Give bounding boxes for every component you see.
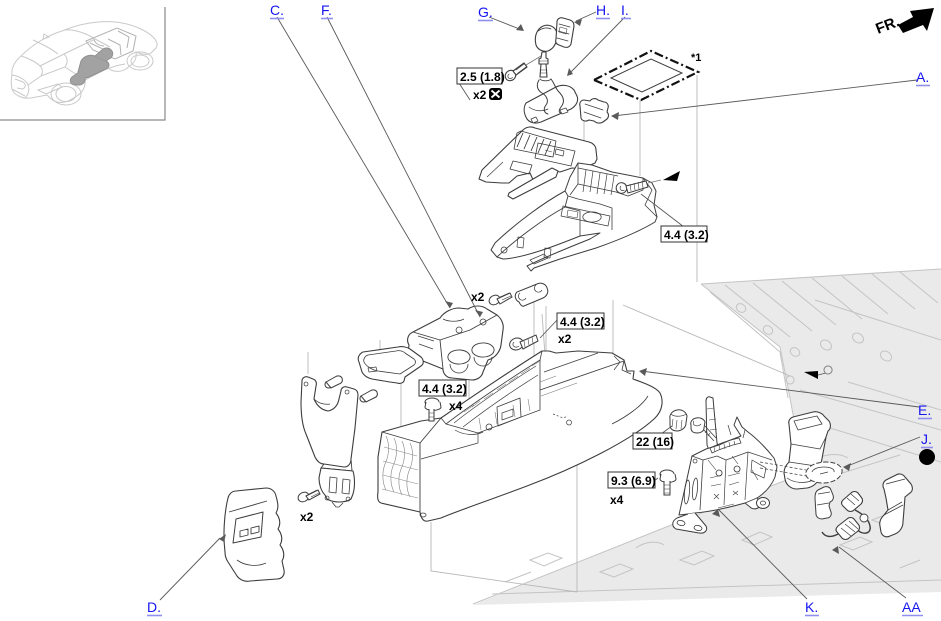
svg-text:A.: A. [916, 69, 929, 85]
svg-text:x2: x2 [473, 88, 487, 102]
svg-text:E.: E. [918, 402, 931, 418]
svg-text:x4: x4 [610, 493, 624, 507]
svg-text:x2: x2 [471, 290, 485, 304]
svg-text:J.: J. [921, 431, 932, 447]
svg-text:C.: C. [270, 2, 284, 18]
svg-text:F.: F. [321, 2, 332, 18]
svg-text:2.5 (1.8): 2.5 (1.8) [460, 70, 505, 84]
svg-text:x4: x4 [449, 399, 463, 413]
svg-text:K.: K. [805, 599, 818, 615]
svg-text:I.: I. [621, 2, 629, 18]
svg-text:H.: H. [596, 2, 610, 18]
svg-text:D.: D. [147, 599, 161, 615]
svg-text:4.4 (3.2): 4.4 (3.2) [560, 315, 605, 329]
svg-text:x2: x2 [558, 332, 572, 346]
svg-text:x2: x2 [300, 510, 314, 524]
svg-text:4.4 (3.2): 4.4 (3.2) [664, 228, 709, 242]
svg-text:9.3 (6.9): 9.3 (6.9) [611, 474, 656, 488]
svg-text:G.: G. [478, 4, 493, 20]
svg-text:*1: *1 [691, 52, 701, 64]
svg-text:22 (16): 22 (16) [636, 435, 674, 449]
svg-text:4.4 (3.2): 4.4 (3.2) [422, 382, 467, 396]
svg-text:AA: AA [902, 599, 921, 615]
